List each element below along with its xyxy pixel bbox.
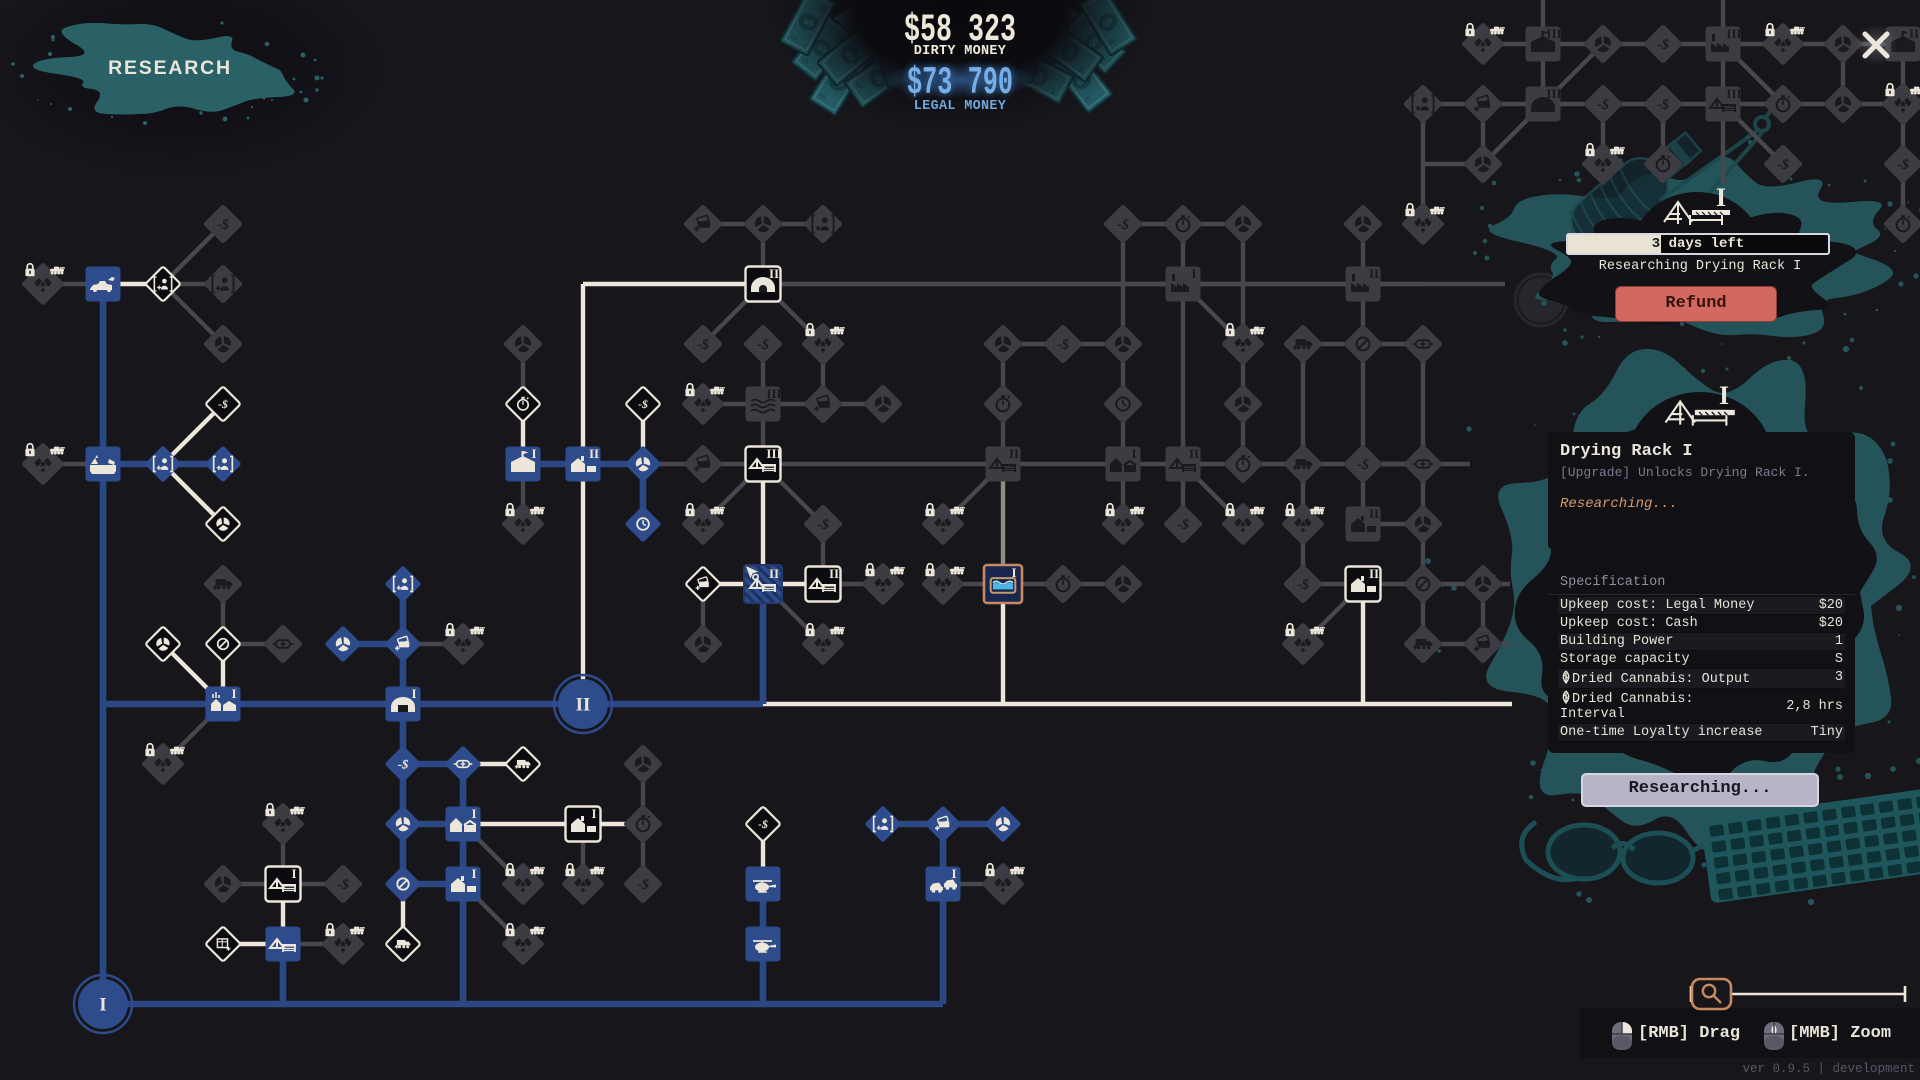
svg-text:I: I [1719, 381, 1729, 410]
svg-text:III: III [766, 446, 781, 461]
svg-text:III: III [1546, 86, 1561, 101]
svg-text:I: I [1716, 183, 1726, 212]
svg-text:I: I [99, 995, 106, 1016]
svg-text:I: I [1131, 446, 1136, 461]
svg-text:I: I [291, 866, 296, 881]
svg-text:I: I [951, 866, 956, 881]
svg-text:LEGAL MONEY: LEGAL MONEY [914, 99, 1007, 114]
svg-text:I: I [411, 686, 416, 701]
svg-text:II: II [1189, 446, 1199, 461]
svg-text:II: II [1009, 446, 1019, 461]
svg-text:I: I [471, 866, 476, 881]
svg-text:II: II [829, 566, 839, 581]
svg-text:II: II [769, 266, 779, 281]
svg-text:DIRTY MONEY: DIRTY MONEY [914, 44, 1007, 59]
svg-text:I: I [1011, 565, 1016, 580]
svg-text:II: II [1369, 506, 1379, 521]
svg-text:III: III [766, 386, 781, 401]
svg-text:II: II [589, 446, 599, 461]
svg-text:I: I [531, 446, 536, 461]
svg-text:I: I [231, 686, 236, 701]
svg-text:III: III [1726, 26, 1741, 41]
svg-text:III: III [1546, 26, 1561, 41]
svg-text:II: II [1369, 566, 1379, 581]
svg-text:I: I [591, 806, 596, 821]
svg-text:II: II [1369, 266, 1379, 281]
svg-text:I: I [471, 806, 476, 821]
svg-text:II: II [769, 566, 779, 581]
svg-text:II: II [576, 695, 591, 716]
svg-text:I: I [1191, 266, 1196, 281]
svg-text:II: II [1909, 26, 1919, 41]
svg-text:III: III [1726, 86, 1741, 101]
